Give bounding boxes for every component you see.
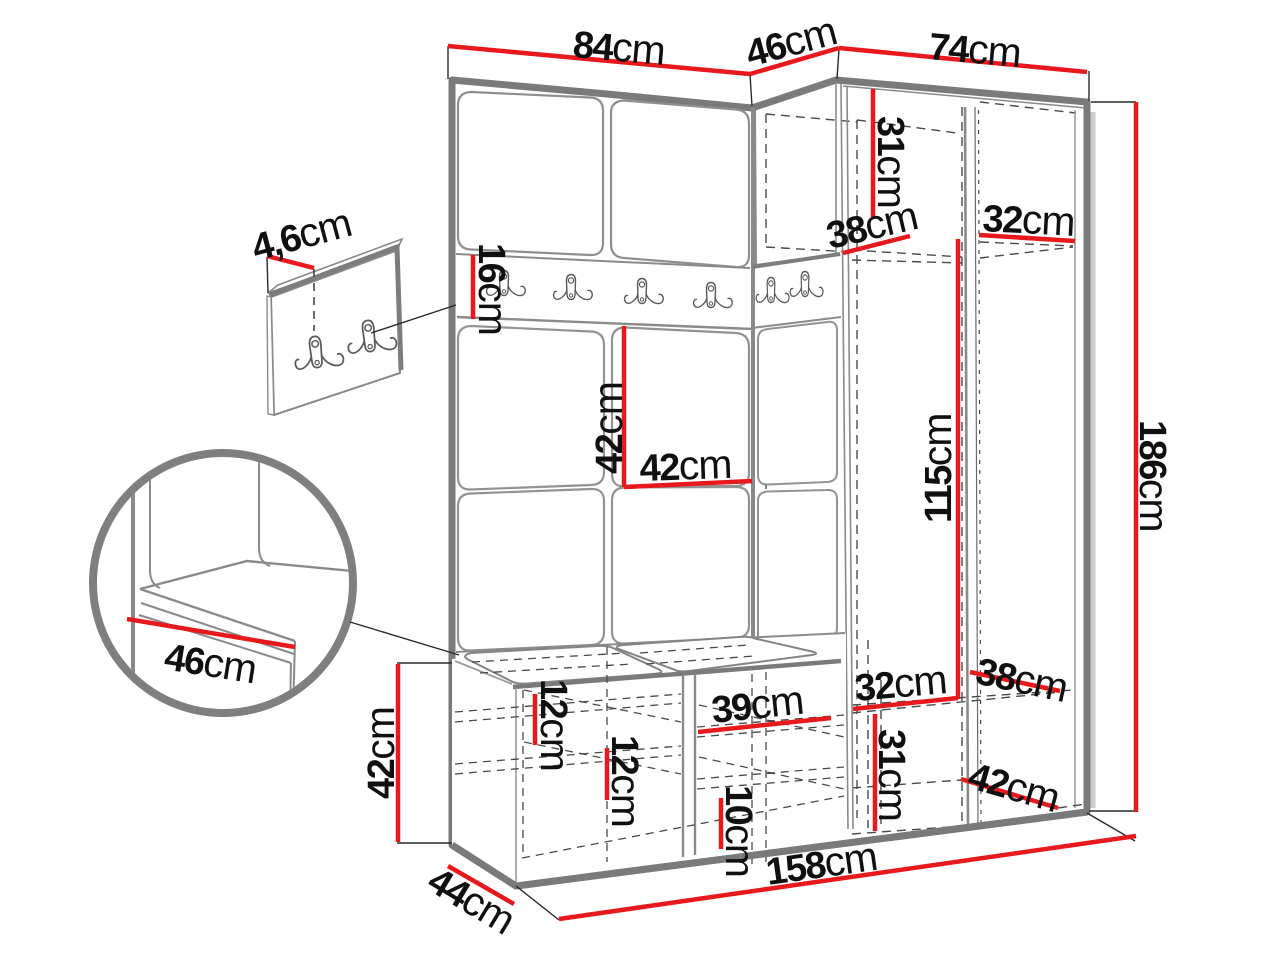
svg-text:16cm: 16cm xyxy=(470,243,516,335)
svg-text:42cm: 42cm xyxy=(585,382,631,474)
svg-text:42cm: 42cm xyxy=(639,441,732,490)
svg-text:74cm: 74cm xyxy=(927,22,1023,76)
svg-text:31cm: 31cm xyxy=(870,729,916,821)
svg-text:32cm: 32cm xyxy=(982,194,1076,245)
svg-text:84cm: 84cm xyxy=(571,20,667,74)
svg-text:186cm: 186cm xyxy=(1131,420,1177,532)
svg-text:12cm: 12cm xyxy=(532,679,578,771)
svg-text:10cm: 10cm xyxy=(717,785,763,877)
svg-text:115cm: 115cm xyxy=(914,414,960,523)
svg-text:12cm: 12cm xyxy=(603,735,649,827)
svg-text:42cm: 42cm xyxy=(357,707,403,799)
